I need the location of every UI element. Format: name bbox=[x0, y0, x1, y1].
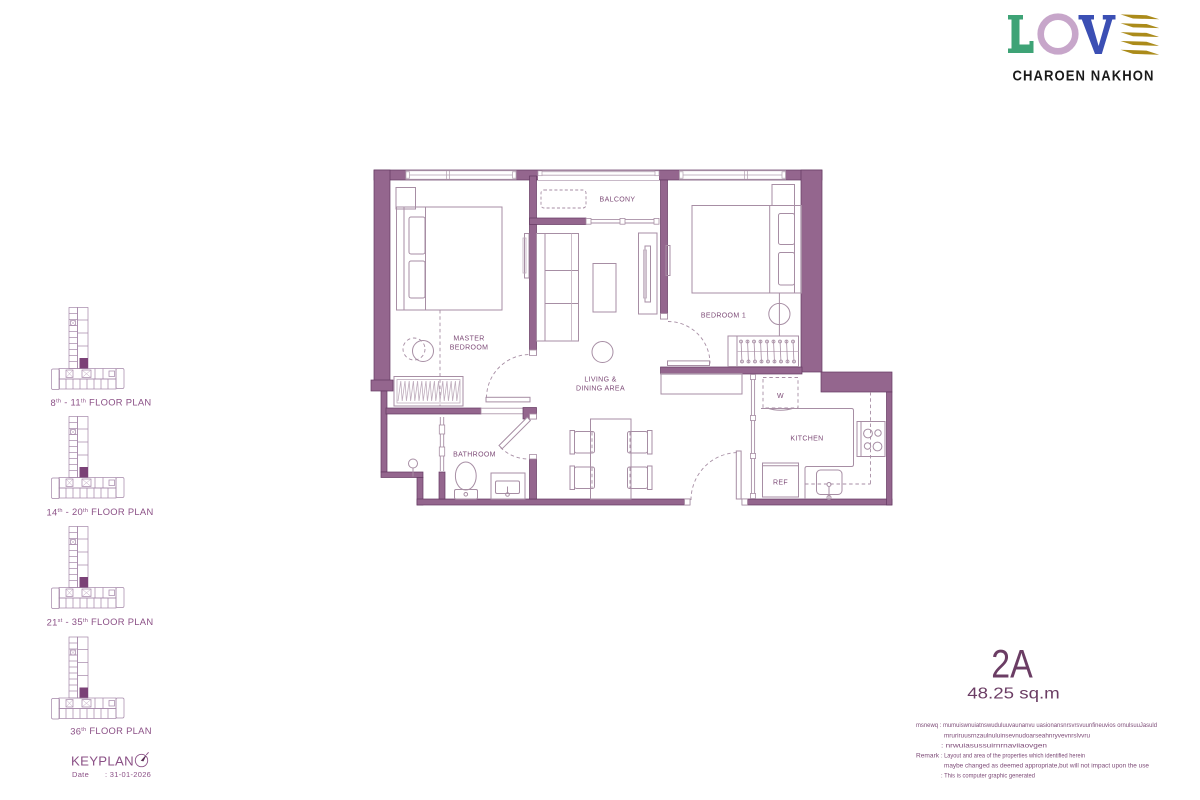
svg-text:: Layout and area of the prope: : Layout and area of the properties whic… bbox=[941, 753, 1085, 760]
svg-text:Date: Date bbox=[72, 770, 89, 779]
svg-text:BATHROOM: BATHROOM bbox=[453, 452, 496, 459]
svg-text:48.25 sq.m: 48.25 sq.m bbox=[967, 686, 1060, 703]
svg-text:KEYPLAN: KEYPLAN bbox=[71, 754, 134, 769]
svg-text:BALCONY: BALCONY bbox=[600, 197, 636, 204]
svg-text:: nrwuiasussuirnrnaviiaovgen: : nrwuiasussuirnrnaviiaovgen bbox=[941, 743, 1047, 750]
svg-text:msnewq : mumuiswnuiatnswuduluu: msnewq : mumuiswnuiatnswuduluuvaunanvu u… bbox=[916, 722, 1157, 729]
svg-text:BEDROOM: BEDROOM bbox=[450, 345, 489, 352]
svg-text:W: W bbox=[777, 393, 784, 400]
svg-text:BEDROOM 1: BEDROOM 1 bbox=[701, 313, 746, 320]
svg-text:2A: 2A bbox=[991, 643, 1033, 687]
svg-text:: This is computer graphic gen: : This is computer graphic generated bbox=[941, 773, 1035, 780]
svg-text:14th - 20th FLOOR PLAN: 14th - 20th FLOOR PLAN bbox=[46, 506, 153, 517]
svg-text:REF: REF bbox=[773, 480, 788, 487]
svg-text:MASTER: MASTER bbox=[453, 336, 484, 343]
svg-text:maybe changed as deemed approp: maybe changed as deemed appropriate,but … bbox=[944, 763, 1149, 770]
svg-text:KITCHEN: KITCHEN bbox=[790, 436, 823, 443]
svg-text:mruriruusrnzaulnuluinsevnudoar: mruriruusrnzaulnuluinsevnudoarseahnryvev… bbox=[944, 733, 1090, 740]
svg-text:CHAROEN NAKHON: CHAROEN NAKHON bbox=[1013, 69, 1155, 85]
svg-text:DINING AREA: DINING AREA bbox=[576, 386, 625, 393]
svg-text:Remark: Remark bbox=[916, 753, 940, 760]
svg-text:: 31-01-2026: : 31-01-2026 bbox=[105, 770, 151, 779]
svg-text:LIVING &: LIVING & bbox=[584, 377, 616, 384]
svg-text:21st - 35th FLOOR PLAN: 21st - 35th FLOOR PLAN bbox=[47, 616, 154, 627]
svg-text:8th - 11th FLOOR PLAN: 8th - 11th FLOOR PLAN bbox=[51, 397, 152, 408]
